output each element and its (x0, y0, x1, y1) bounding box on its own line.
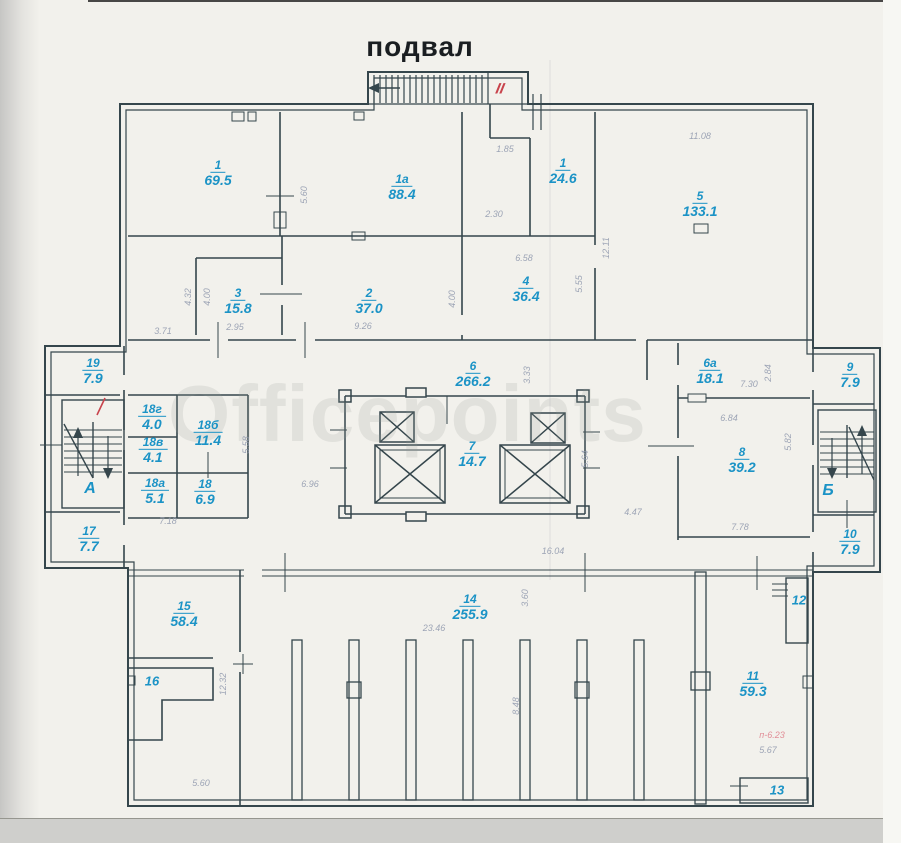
room-label-11: 1159.3 (739, 667, 766, 699)
room-area: 58.4 (170, 614, 197, 629)
dimension-label: 5.60 (192, 778, 210, 788)
stair-down-arrow (103, 468, 113, 479)
room-number: 9 (843, 361, 858, 375)
room-label-5: 5133.1 (682, 187, 717, 219)
dimension-label: 3.71 (154, 326, 172, 336)
room-number: 16 (141, 674, 163, 688)
room-number: 1а (391, 173, 412, 187)
room-label-18в: 18в4.1 (139, 433, 168, 465)
room-label-15: 1558.4 (170, 597, 197, 629)
dimension-label: 2.95 (226, 322, 244, 332)
room-label-1а: 1а88.4 (388, 170, 415, 202)
room-number: 10 (839, 528, 860, 542)
scanned-floorplan-page: Officepoints подвал II п-6.23 169.51а88.… (0, 0, 901, 843)
room-area: 5.1 (141, 491, 169, 506)
room-label-4: 436.4 (512, 272, 539, 304)
elevator-shaft-large-right (500, 445, 570, 503)
dimension-label: 6.84 (720, 413, 738, 423)
room-number: 4 (519, 275, 534, 289)
dimension-label: 9.26 (354, 321, 372, 331)
red-annotation: п-6.23 (759, 730, 784, 740)
room-area: 37.0 (355, 301, 382, 316)
dimension-label: 16.04 (542, 546, 565, 556)
room-area: 59.3 (739, 684, 766, 699)
room-label-18г: 18г4.0 (138, 400, 166, 432)
stair-up-arrow (73, 427, 83, 438)
dimension-label: 3.60 (520, 589, 530, 607)
room-label-10: 107.9 (839, 525, 860, 557)
dimension-label: 4.32 (183, 288, 193, 306)
room-label-1: 124.6 (549, 154, 576, 186)
room-area: 255.9 (452, 607, 487, 622)
floorplan-drawing (0, 0, 901, 843)
entrance-ramp (368, 72, 541, 130)
room-number: 7 (465, 440, 480, 454)
dimension-label: 4.47 (624, 507, 642, 517)
room-area: 133.1 (682, 204, 717, 219)
dimension-label: 1.85 (496, 144, 514, 154)
dimension-label: 5.60 (299, 186, 309, 204)
room-area: 18.1 (696, 371, 723, 386)
dimension-label: 2.84 (763, 364, 773, 382)
room-label-14: 14255.9 (452, 590, 487, 622)
parking-fins-room14 (292, 572, 710, 804)
room-area: 6.9 (194, 492, 215, 507)
room-number: 1 (211, 159, 226, 173)
room-label-2: 237.0 (355, 284, 382, 316)
room-number: 18в (139, 436, 168, 450)
room-area: 266.2 (455, 374, 490, 389)
dimension-label: 12.32 (218, 673, 228, 696)
elevator-shaft-small-left (380, 412, 414, 442)
room-label-17: 177.7 (78, 522, 99, 554)
stairwell-label-Б: Б (822, 482, 833, 500)
dimension-label: 6.58 (515, 253, 533, 263)
stair-up-arrow (857, 425, 867, 436)
dimension-label: 2.30 (485, 209, 503, 219)
room-number: 8 (735, 446, 750, 460)
room-number: 12 (788, 593, 810, 607)
room-area: 69.5 (204, 173, 231, 188)
dimension-label: 5.67 (759, 745, 777, 755)
room-area: 39.2 (728, 460, 755, 475)
room-area: 7.7 (78, 539, 99, 554)
room-area: 7.9 (839, 542, 860, 557)
room-label-18а: 18а5.1 (141, 474, 169, 506)
room-area: 24.6 (549, 171, 576, 186)
room-area: 15.8 (224, 301, 251, 316)
room-area: 4.1 (139, 450, 168, 465)
room-label-18б: 18б11.4 (194, 416, 223, 448)
room-number: 11 (743, 670, 763, 684)
room-area: 7.9 (82, 371, 103, 386)
room-number: 18б (194, 419, 223, 433)
dimension-label: 5.64 (580, 450, 590, 468)
dimension-label: 7.78 (731, 522, 749, 532)
room-number: 6 (466, 360, 481, 374)
dimension-label: 4.00 (447, 290, 457, 308)
dimension-label: 5.58 (241, 436, 251, 454)
room-area: 36.4 (512, 289, 539, 304)
room-number: 2 (362, 287, 377, 301)
room-area: 14.7 (458, 454, 485, 469)
room-number: 13 (766, 783, 788, 797)
dimension-label: 7.30 (740, 379, 758, 389)
room-number: 5 (693, 190, 708, 204)
room-label-9: 97.9 (840, 358, 859, 390)
room-number: 18а (141, 477, 169, 491)
room-area: 88.4 (388, 187, 415, 202)
room-label-12: 12 (788, 591, 810, 608)
room-number: 18г (138, 403, 166, 417)
dimension-label: 5.82 (783, 433, 793, 451)
room-number: 18 (194, 478, 215, 492)
room-label-13: 13 (766, 781, 788, 798)
elevator-shaft-large-left (375, 445, 445, 503)
elevator-shaft-small-right (531, 413, 565, 443)
section-line-ticks (533, 94, 541, 130)
dimension-label: 5.55 (574, 275, 584, 293)
room-area: 4.0 (138, 417, 166, 432)
dimension-label: 3.33 (522, 366, 532, 384)
room-label-18: 186.9 (194, 475, 215, 507)
room-number: 6а (699, 357, 720, 371)
room-label-8: 839.2 (728, 443, 755, 475)
scan-edge-bottom (0, 818, 901, 843)
room-label-3: 315.8 (224, 284, 251, 316)
room-12-outline (786, 578, 808, 643)
room-number: 15 (173, 600, 194, 614)
room-number: 19 (82, 357, 103, 371)
room-number: 3 (231, 287, 246, 301)
room-label-19: 197.9 (82, 354, 103, 386)
dimension-label: 6.96 (301, 479, 319, 489)
room-number: 1 (556, 157, 571, 171)
stairwell-label-А: А (84, 480, 96, 498)
plan-title: подвал (366, 31, 474, 63)
dimension-label: 12.11 (601, 237, 611, 259)
paper-crease (549, 60, 551, 580)
dimension-label: 4.00 (202, 288, 212, 306)
room-label-6а: 6а18.1 (696, 354, 723, 386)
room-number: 14 (459, 593, 480, 607)
room-label-7: 714.7 (458, 437, 485, 469)
dimension-label: 7.18 (159, 516, 177, 526)
dimension-label: 8.48 (511, 697, 521, 715)
scan-edge-top (88, 0, 901, 2)
room-label-1: 169.5 (204, 156, 231, 188)
room-area: 11.4 (194, 433, 223, 448)
room-label-6: 6266.2 (455, 357, 490, 389)
room-area: 7.9 (840, 375, 859, 390)
room-number: 17 (78, 525, 99, 539)
room-label-16: 16 (141, 672, 163, 689)
scan-edge-right (883, 0, 901, 843)
dimension-label: 23.46 (423, 623, 446, 633)
dimension-label: 11.08 (689, 131, 711, 141)
